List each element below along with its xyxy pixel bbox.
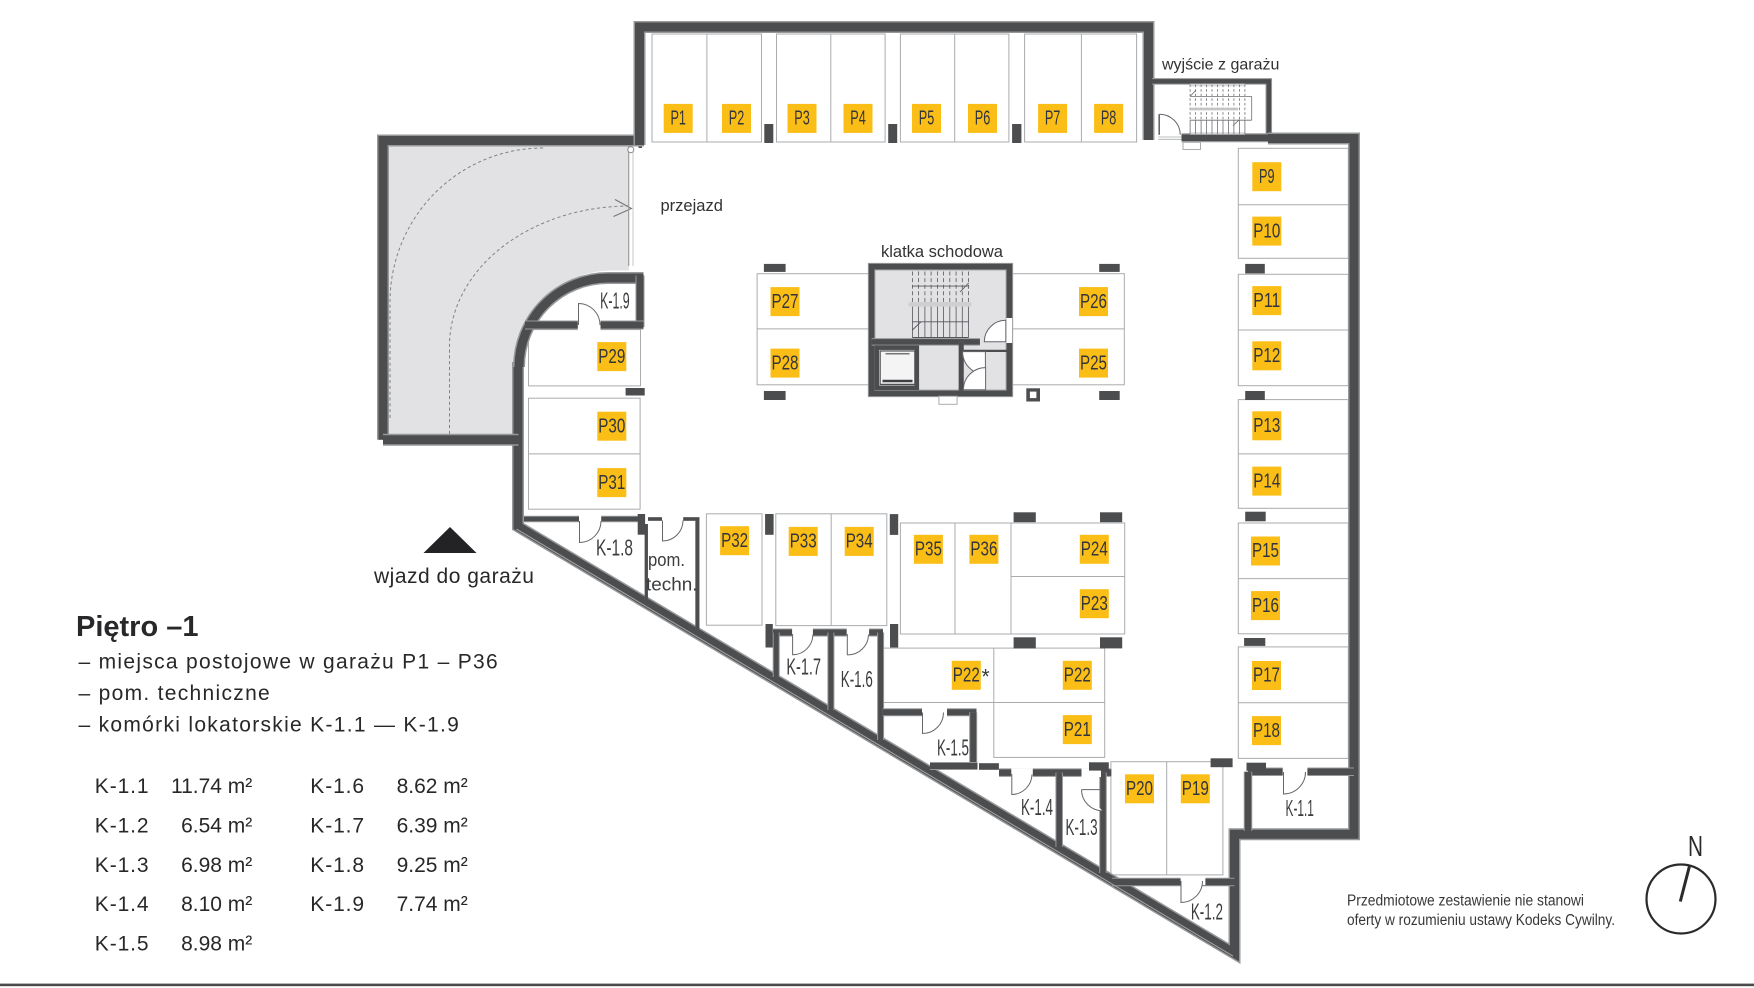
svg-text:K-1.6: K-1.6 [841, 666, 873, 692]
svg-text:6.39 m²: 6.39 m² [397, 814, 468, 837]
svg-text:P35: P35 [915, 539, 942, 561]
svg-text:wyjście z garażu: wyjście z garażu [1161, 57, 1279, 74]
svg-text:K-1.7: K-1.7 [786, 654, 821, 680]
svg-text:11.74 m²: 11.74 m² [171, 775, 252, 798]
svg-text:P29: P29 [598, 346, 625, 368]
svg-text:P7: P7 [1045, 108, 1061, 130]
svg-text:P13: P13 [1253, 415, 1280, 437]
svg-text:P5: P5 [919, 108, 935, 130]
svg-text:P36: P36 [970, 539, 997, 561]
svg-text:P25: P25 [1080, 352, 1107, 374]
svg-text:techn.: techn. [646, 574, 698, 595]
svg-text:6.54 m²: 6.54 m² [181, 814, 252, 837]
svg-text:P24: P24 [1081, 539, 1108, 561]
svg-text:P23: P23 [1081, 593, 1108, 615]
svg-text:P21: P21 [1064, 719, 1091, 741]
svg-text:Przedmiotowe zestawienie nie s: Przedmiotowe zestawienie nie stanowi [1347, 892, 1584, 909]
svg-text:P32: P32 [721, 530, 748, 552]
svg-text:przejazd: przejazd [661, 197, 723, 215]
svg-text:Piętro –1: Piętro –1 [76, 611, 199, 643]
svg-text:P2: P2 [729, 108, 745, 130]
svg-text:wjazd do garażu: wjazd do garażu [373, 565, 534, 588]
svg-text:*: * [982, 666, 990, 689]
svg-text:6.98 m²: 6.98 m² [181, 854, 252, 877]
svg-text:8.98 m²: 8.98 m² [181, 933, 252, 956]
svg-text:P12: P12 [1253, 345, 1280, 367]
svg-text:P18: P18 [1253, 720, 1280, 742]
svg-text:– miejsca postojowe w garażu P: – miejsca postojowe w garażu P1 – P36 [79, 651, 499, 674]
svg-text:8.10 m²: 8.10 m² [181, 893, 252, 916]
svg-text:– komórki lokatorskie K-1.1 —: – komórki lokatorskie K-1.1 — K-1.9 [79, 714, 461, 737]
svg-text:P26: P26 [1080, 291, 1107, 313]
svg-text:K-1.2: K-1.2 [95, 814, 150, 837]
svg-text:P20: P20 [1126, 778, 1153, 800]
svg-text:K-1.5: K-1.5 [95, 933, 150, 956]
svg-text:klatka schodowa: klatka schodowa [881, 243, 1004, 261]
svg-text:K-1.2: K-1.2 [1191, 898, 1223, 924]
svg-text:P8: P8 [1101, 108, 1117, 130]
svg-text:K-1.6: K-1.6 [310, 775, 365, 798]
svg-text:K-1.8: K-1.8 [310, 854, 365, 877]
svg-text:K-1.3: K-1.3 [95, 854, 150, 877]
svg-text:P33: P33 [790, 531, 817, 553]
svg-text:P9: P9 [1259, 166, 1275, 188]
svg-text:pom.: pom. [648, 549, 685, 570]
svg-text:P1: P1 [670, 108, 686, 130]
svg-text:K-1.4: K-1.4 [95, 893, 150, 916]
svg-text:P17: P17 [1253, 665, 1280, 687]
svg-text:P22: P22 [1064, 665, 1091, 687]
svg-text:– pom. techniczne: – pom. techniczne [79, 682, 272, 705]
svg-text:P22: P22 [953, 665, 980, 687]
svg-text:K-1.5: K-1.5 [937, 735, 969, 761]
svg-text:P27: P27 [772, 291, 799, 313]
svg-text:P34: P34 [846, 531, 873, 553]
svg-text:P16: P16 [1252, 595, 1279, 617]
svg-text:N: N [1688, 831, 1703, 863]
svg-text:P30: P30 [598, 415, 625, 437]
svg-text:K-1.3: K-1.3 [1065, 814, 1097, 840]
svg-text:K-1.8: K-1.8 [596, 535, 633, 561]
svg-text:K-1.1: K-1.1 [95, 775, 150, 798]
svg-text:P15: P15 [1252, 540, 1279, 562]
svg-text:7.74 m²: 7.74 m² [397, 893, 468, 916]
svg-text:P10: P10 [1253, 220, 1280, 242]
svg-text:K-1.7: K-1.7 [310, 814, 365, 837]
svg-text:oferty w rozumieniu ustawy Kod: oferty w rozumieniu ustawy Kodeks Cywiln… [1347, 912, 1615, 929]
svg-text:P31: P31 [598, 472, 625, 494]
svg-text:P6: P6 [975, 108, 991, 130]
svg-text:P4: P4 [850, 108, 866, 130]
svg-text:8.62 m²: 8.62 m² [397, 775, 468, 798]
svg-text:K-1.9: K-1.9 [310, 893, 365, 916]
svg-text:P3: P3 [794, 108, 810, 130]
svg-text:P28: P28 [772, 352, 799, 374]
svg-text:P11: P11 [1253, 290, 1280, 312]
svg-text:9.25 m²: 9.25 m² [397, 854, 468, 877]
svg-text:P14: P14 [1253, 470, 1280, 492]
svg-text:K-1.1: K-1.1 [1286, 795, 1314, 821]
svg-text:K-1.4: K-1.4 [1021, 794, 1053, 820]
svg-text:K-1.9: K-1.9 [600, 287, 630, 313]
svg-text:P19: P19 [1182, 778, 1209, 800]
